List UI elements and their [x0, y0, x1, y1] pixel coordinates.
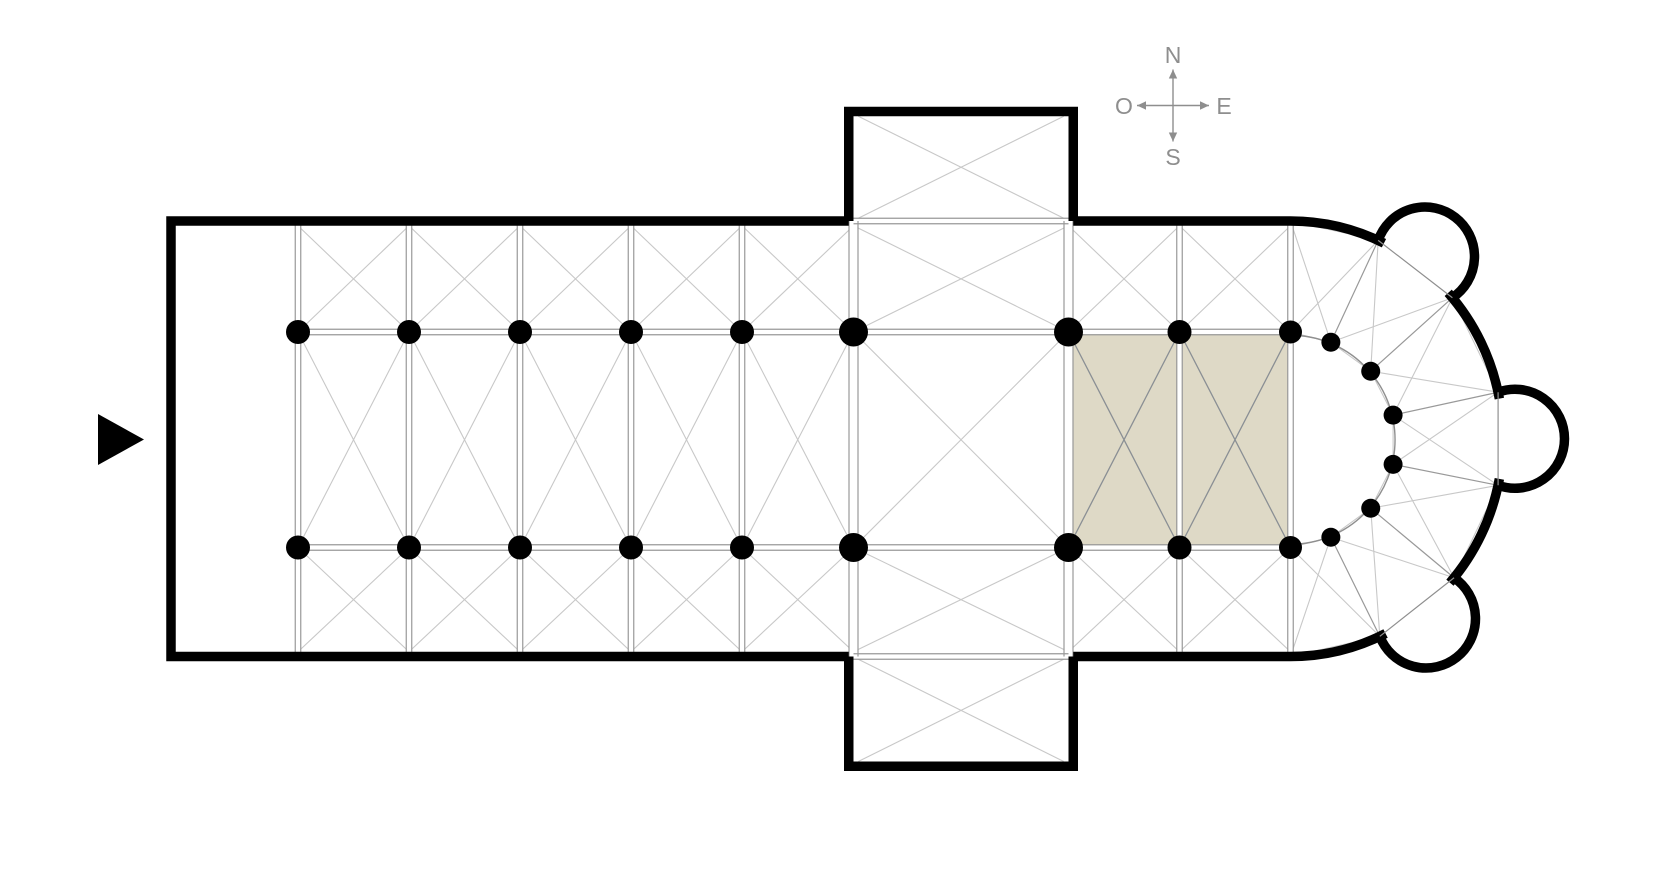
- svg-text:O: O: [1115, 93, 1133, 119]
- svg-text:N: N: [1165, 42, 1182, 68]
- svg-text:E: E: [1216, 93, 1231, 119]
- svg-text:S: S: [1165, 144, 1180, 170]
